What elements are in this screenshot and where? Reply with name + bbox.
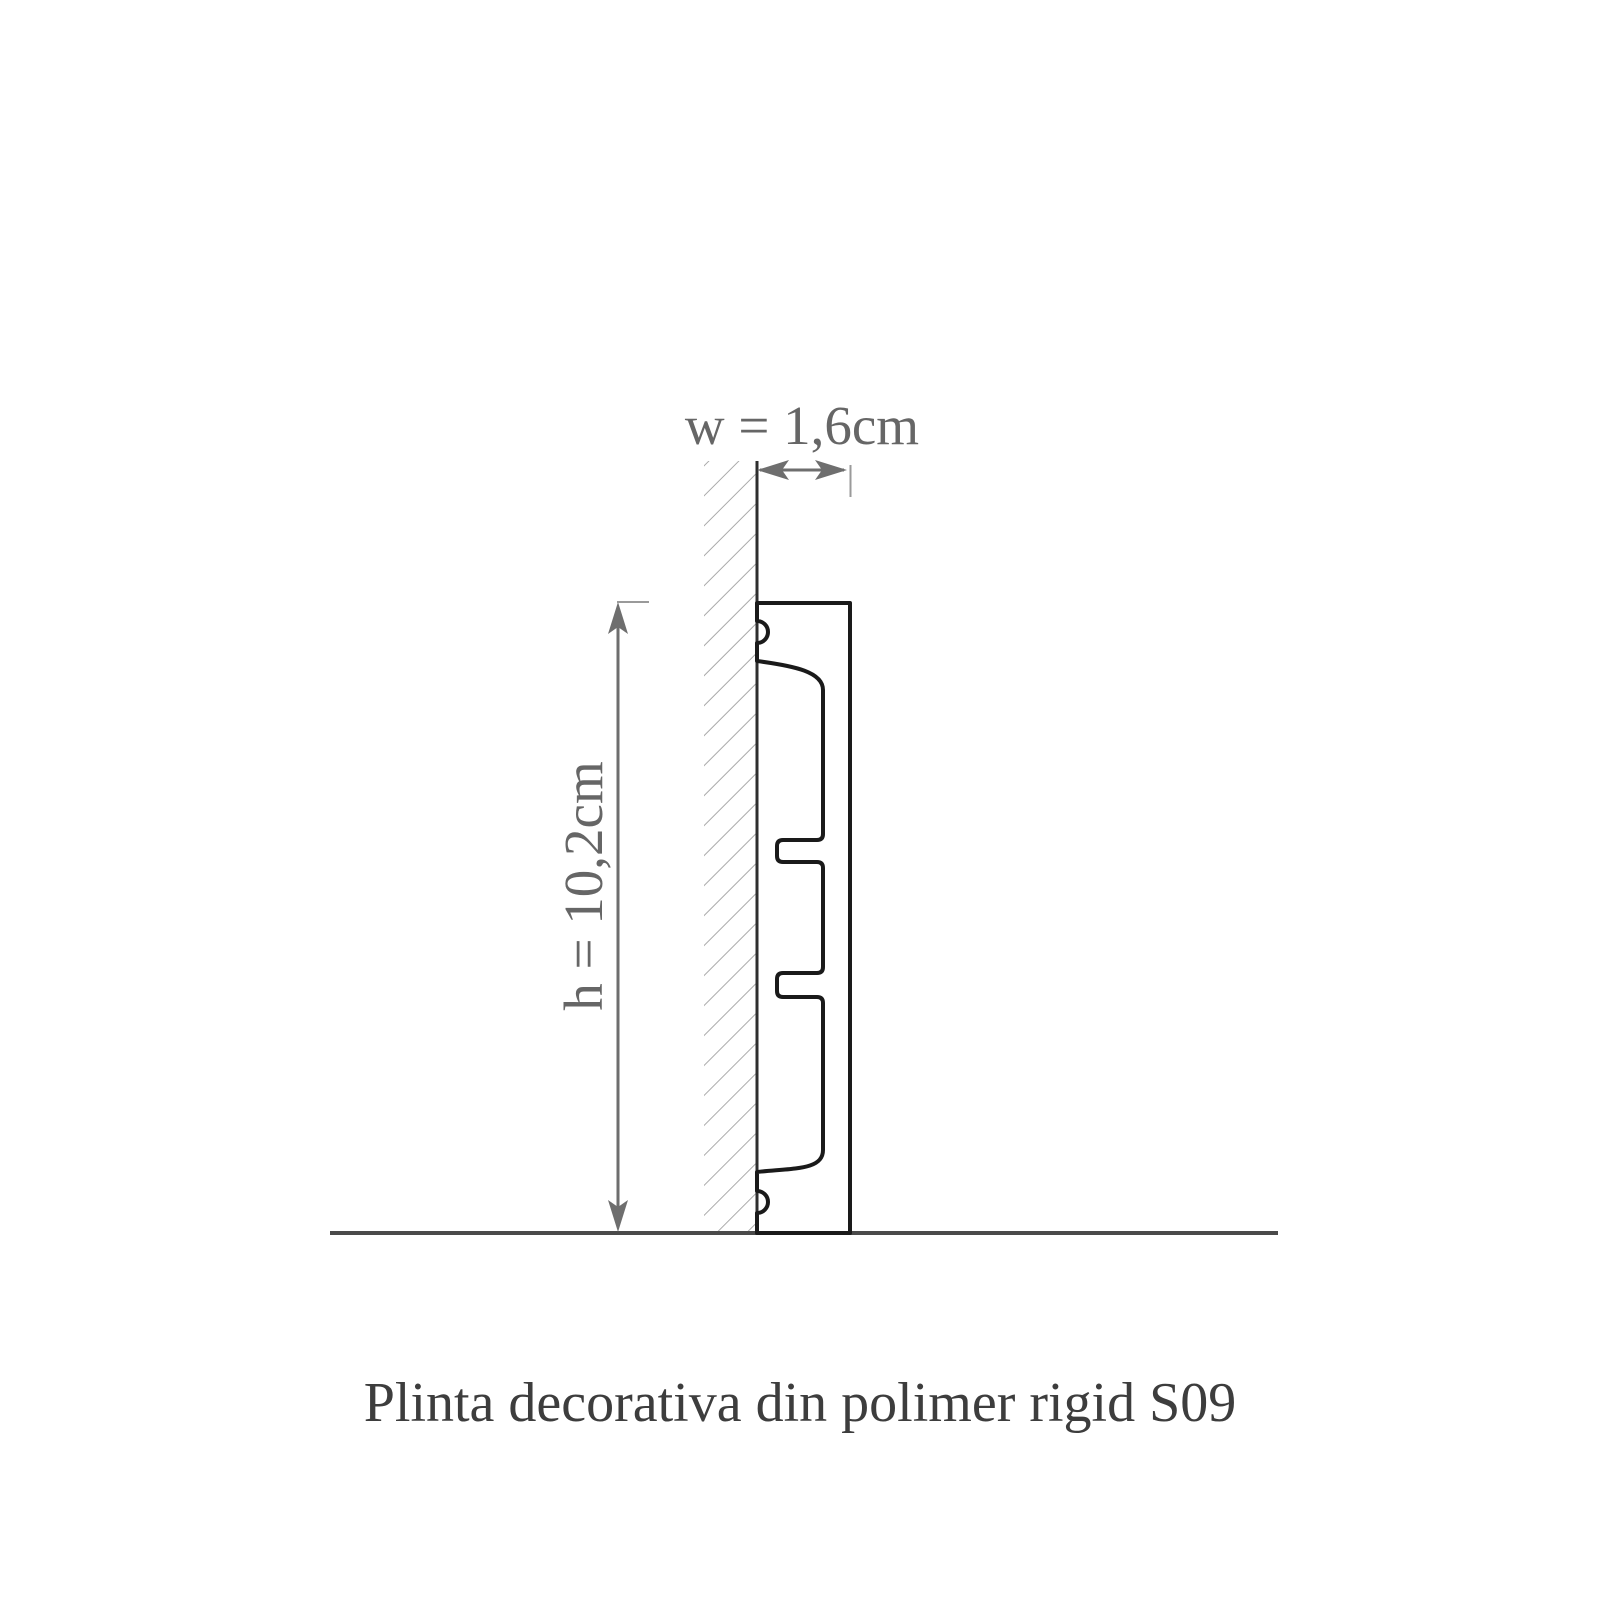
diagram-caption: Plinta decorativa din polimer rigid S09 — [364, 1372, 1237, 1434]
height-dimension: h = 10,2cm — [553, 602, 649, 1232]
diagram-canvas: w = 1,6cm h = 10,2cm Plinta decorativa d… — [0, 0, 1600, 1600]
wall-hatching — [704, 461, 757, 1233]
width-dimension-label: w = 1,6cm — [685, 395, 919, 456]
height-dimension-label: h = 10,2cm — [553, 761, 614, 1010]
skirting-profile-diagram: w = 1,6cm h = 10,2cm Plinta decorativa d… — [0, 0, 1600, 1600]
skirting-profile-outline — [757, 603, 850, 1233]
